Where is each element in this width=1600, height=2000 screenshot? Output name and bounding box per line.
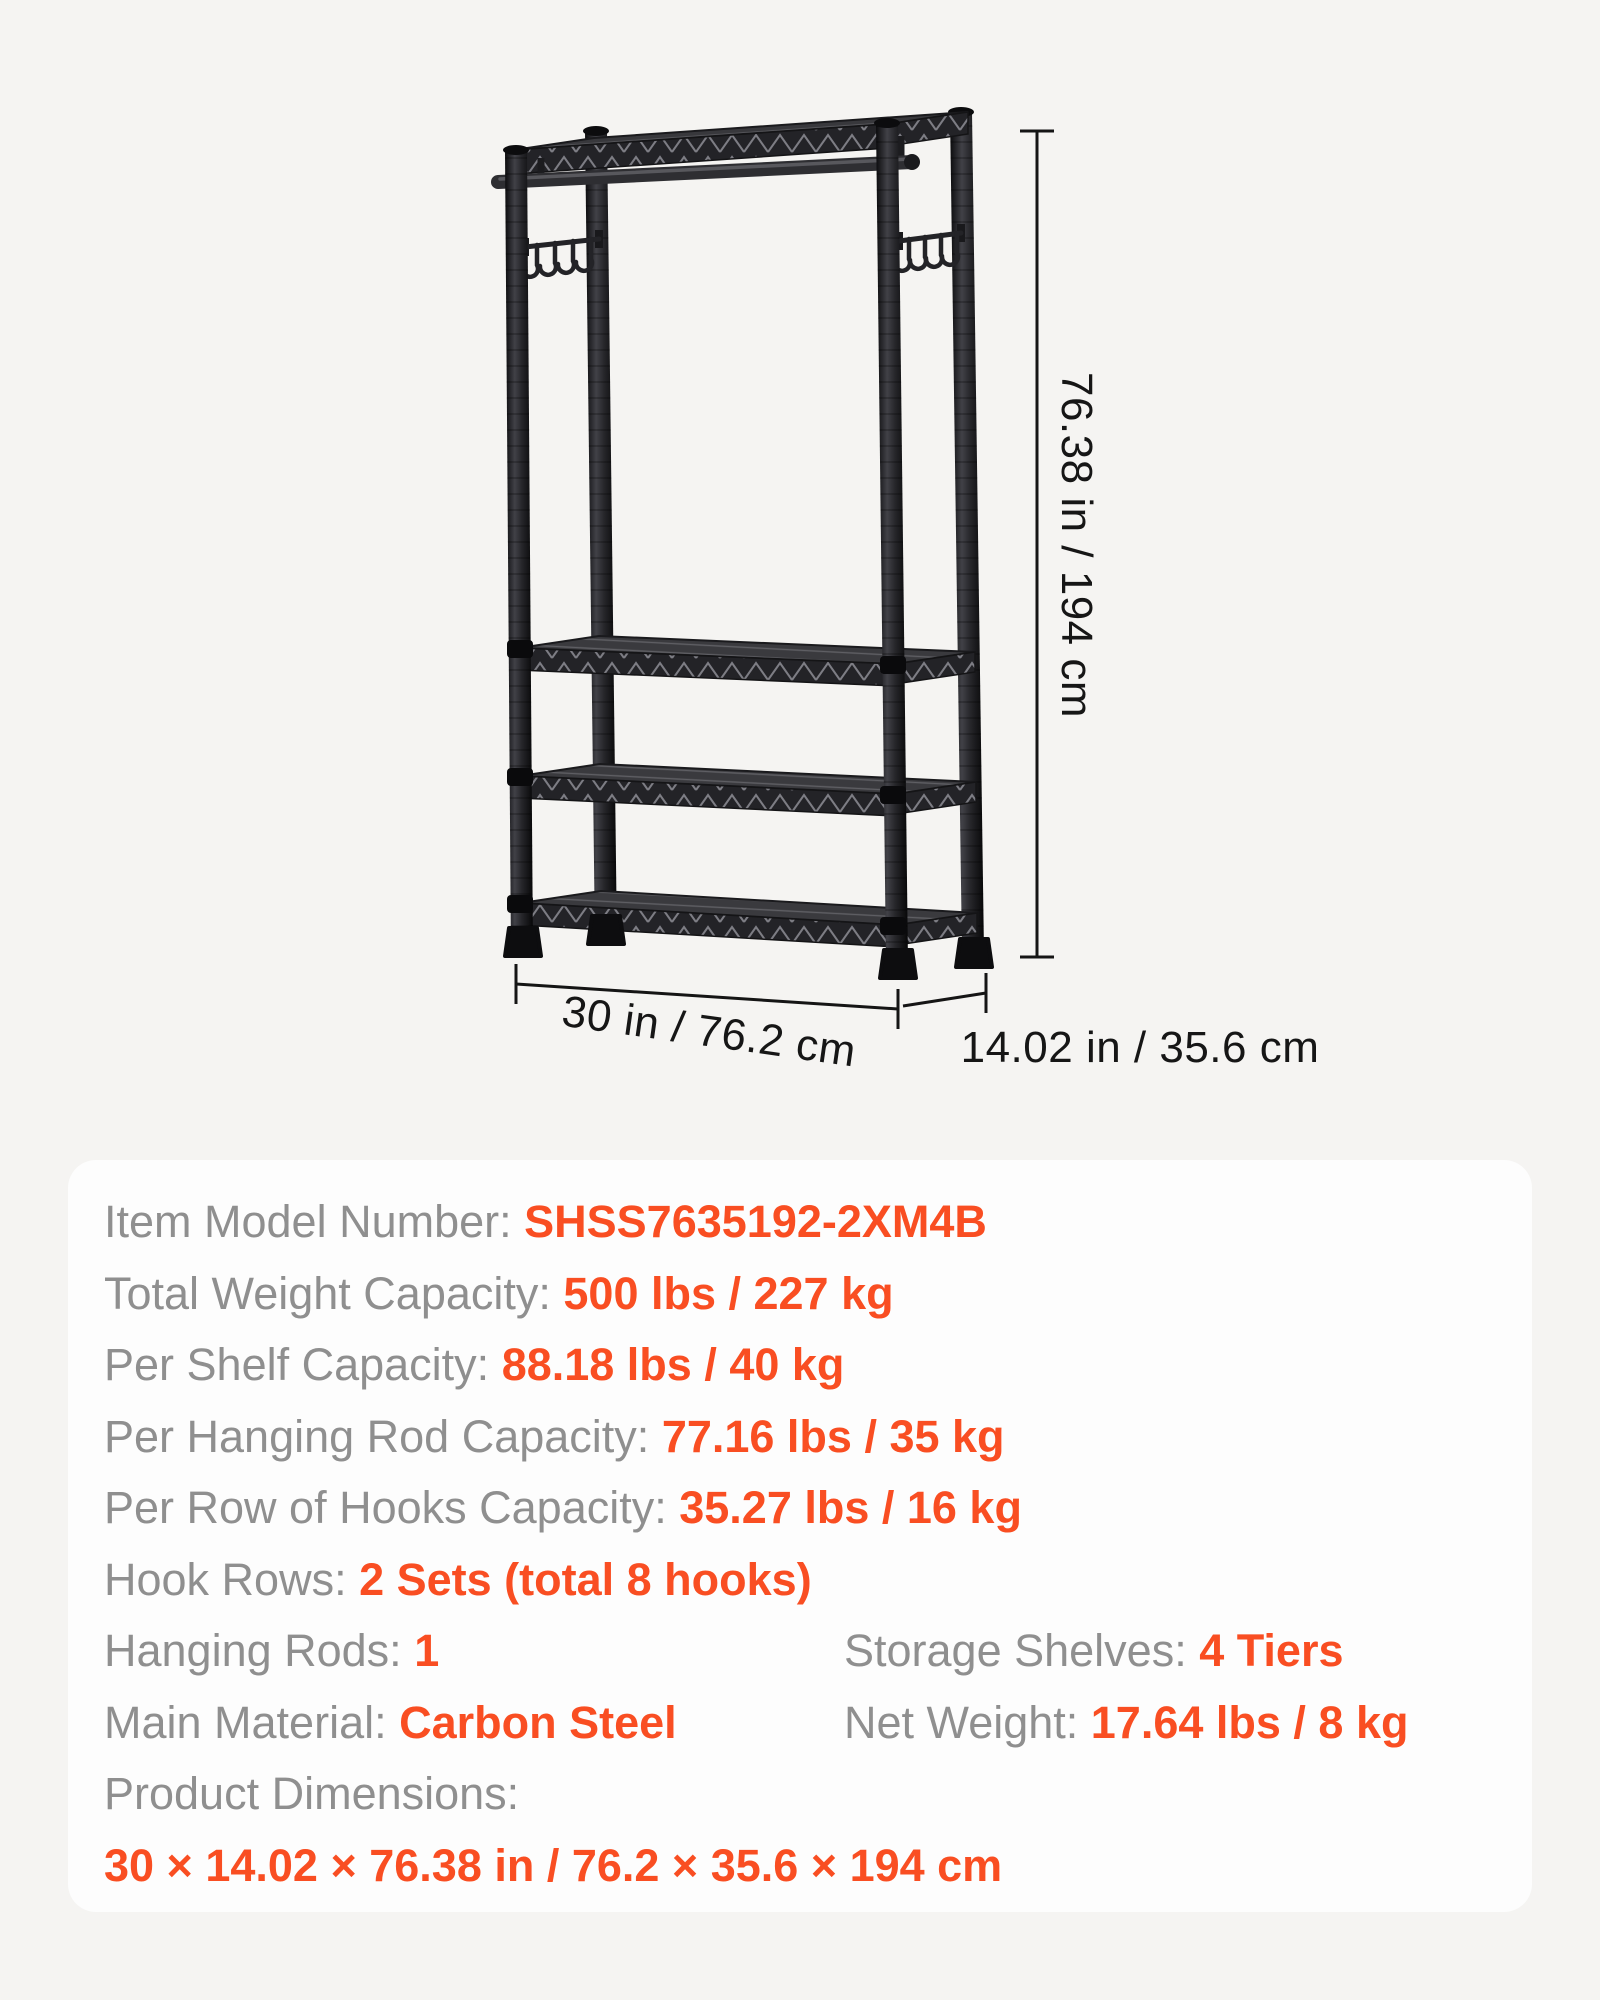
spec-label: Product Dimensions: [104, 1768, 519, 1819]
spec-label: Hanging Rods: [104, 1625, 414, 1676]
middle-shelf-1 [519, 636, 975, 686]
spec-row-rod-capacity: Per Hanging Rod Capacity: 77.16 lbs / 35… [104, 1401, 1502, 1473]
spec-row-shelf-capacity: Per Shelf Capacity: 88.18 lbs / 40 kg [104, 1329, 1502, 1401]
spec-row-total-capacity: Total Weight Capacity: 500 lbs / 227 kg [104, 1258, 1502, 1330]
depth-dimension-label: 14.02 in / 35.6 cm [961, 1023, 1320, 1072]
rack-back-posts [583, 107, 984, 953]
left-hook-row [521, 230, 603, 277]
spec-cell: Hanging Rods: 1 [104, 1615, 844, 1687]
spec-value: SHSS7635192-2XM4B [524, 1196, 987, 1247]
spec-label: Per Row of Hooks Capacity: [104, 1482, 679, 1533]
spec-value: 88.18 lbs / 40 kg [502, 1339, 845, 1390]
spec-row-model: Item Model Number: SHSS7635192-2XM4B [104, 1186, 1502, 1258]
spec-value: 35.27 lbs / 16 kg [679, 1482, 1022, 1533]
spec-value: Carbon Steel [399, 1697, 677, 1748]
spec-label: Item Model Number: [104, 1196, 524, 1247]
spec-label: Main Material: [104, 1697, 399, 1748]
spec-row-dimensions-value: 30 × 14.02 × 76.38 in / 76.2 × 35.6 × 19… [104, 1830, 1502, 1902]
spec-value: 4 Tiers [1199, 1625, 1343, 1676]
spec-cell: Net Weight: 17.64 lbs / 8 kg [844, 1687, 1502, 1759]
spec-value: 17.64 lbs / 8 kg [1091, 1697, 1409, 1748]
product-spec-page: { "page": { "background_color": "#f5f4f2… [0, 0, 1600, 2000]
spec-cell: Storage Shelves: 4 Tiers [844, 1615, 1502, 1687]
width-dimension-label: 30 in / 76.2 cm [559, 987, 859, 1077]
spec-row-hooks-capacity: Per Row of Hooks Capacity: 35.27 lbs / 1… [104, 1472, 1502, 1544]
product-illustration: 76.38 in / 194 cm 30 in / 76.2 cm 14.02 … [0, 0, 1600, 1130]
spec-row-rods-shelves: Hanging Rods: 1 Storage Shelves: 4 Tiers [104, 1615, 1502, 1687]
spec-label: Hook Rows: [104, 1554, 359, 1605]
spec-value: 2 Sets (total 8 hooks) [359, 1554, 812, 1605]
spec-row-material-weight: Main Material: Carbon Steel Net Weight: … [104, 1687, 1502, 1759]
spec-value: 30 × 14.02 × 76.38 in / 76.2 × 35.6 × 19… [104, 1840, 1002, 1891]
spec-label: Per Shelf Capacity: [104, 1339, 502, 1390]
spec-value: 1 [414, 1625, 439, 1676]
spec-row-hook-rows: Hook Rows: 2 Sets (total 8 hooks) [104, 1544, 1502, 1616]
spec-label: Net Weight: [844, 1697, 1091, 1748]
spec-label: Per Hanging Rod Capacity: [104, 1411, 662, 1462]
height-dimension-label: 76.38 in / 194 cm [1052, 372, 1101, 718]
spec-label: Total Weight Capacity: [104, 1268, 563, 1319]
spec-panel: Item Model Number: SHSS7635192-2XM4B Tot… [68, 1160, 1532, 1912]
spec-value: 77.16 lbs / 35 kg [662, 1411, 1005, 1462]
spec-label: Storage Shelves: [844, 1625, 1199, 1676]
middle-shelf-2 [520, 764, 976, 816]
spec-row-dimensions-label: Product Dimensions: [104, 1758, 1502, 1830]
spec-value: 500 lbs / 227 kg [563, 1268, 893, 1319]
spec-cell: Main Material: Carbon Steel [104, 1687, 844, 1759]
